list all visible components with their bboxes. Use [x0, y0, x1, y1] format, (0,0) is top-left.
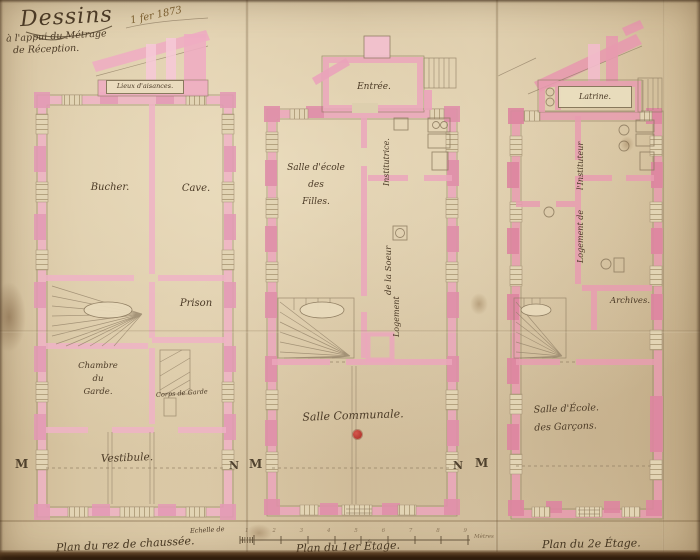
scale-number: 6: [382, 528, 386, 534]
room-label-institutrice: Institutrice.: [382, 130, 392, 186]
sheet-subtitle-2: de Réception.: [13, 43, 80, 57]
room-label-cave: Cave.: [168, 183, 224, 195]
first-plan-stair: [278, 298, 372, 513]
red-survey-dot: [353, 430, 362, 439]
marker-second-left: M: [475, 456, 488, 470]
second-plan-fixtures: [544, 120, 654, 272]
latrine-label-box: Latrine.: [558, 86, 632, 108]
room-label-vestibule: Vestibule.: [96, 451, 158, 466]
scale-number: 5: [354, 528, 358, 534]
room-label-bucher: Bucher.: [80, 182, 140, 194]
scale-number: 2: [272, 528, 276, 534]
second-caption: Plan du 2e Étage.: [542, 536, 672, 551]
room-label-archives: Archives.: [600, 296, 660, 306]
ground-annex-label: Lieux d'aisances.: [117, 83, 173, 91]
scale-bar-numbers: 1 2 3 4 5 6 7 8 9: [240, 528, 472, 534]
room-label-salle-garcons: Salle d'École. des Garçons.: [533, 398, 624, 436]
scale-number: 4: [327, 528, 331, 534]
scale-number: 8: [436, 528, 440, 534]
marker-ground-right: N: [229, 459, 239, 472]
marker-first-left: M: [249, 457, 262, 471]
marker-first-right: N: [453, 459, 463, 472]
room-label-salle-ecole-filles: Salle d'école des Filles.: [280, 160, 352, 211]
marker-ground-left: M: [15, 457, 28, 471]
room-label-de-la-soeur: de la Soeur: [384, 235, 394, 295]
room-label-chambre-garde: Chambre du Garde.: [66, 360, 130, 400]
ground-plan-stair: [52, 286, 142, 346]
room-label-logement-de: Logement de: [576, 209, 586, 263]
scale-number: 1: [245, 528, 249, 534]
room-label-latrine: Latrine.: [579, 92, 611, 102]
scale-end-label: Mètres: [474, 534, 494, 541]
room-label-prison: Prison: [166, 298, 226, 310]
room-label-linstituteur: l'Instituteur: [576, 138, 586, 190]
scale-number: 9: [464, 528, 468, 534]
scale-number: 3: [300, 528, 304, 534]
first-plan-annex: [312, 36, 456, 113]
ground-annex-label-box: Lieux d'aisances.: [106, 80, 184, 94]
room-label-entree: Entrée.: [350, 82, 398, 93]
scanned-floor-plan-sheet: Dessins à l'appui du Métrage de Réceptio…: [0, 0, 700, 560]
room-label-logement: Logement: [392, 291, 402, 337]
scale-number: 7: [409, 528, 413, 534]
first-plan-fixtures: [368, 118, 450, 360]
